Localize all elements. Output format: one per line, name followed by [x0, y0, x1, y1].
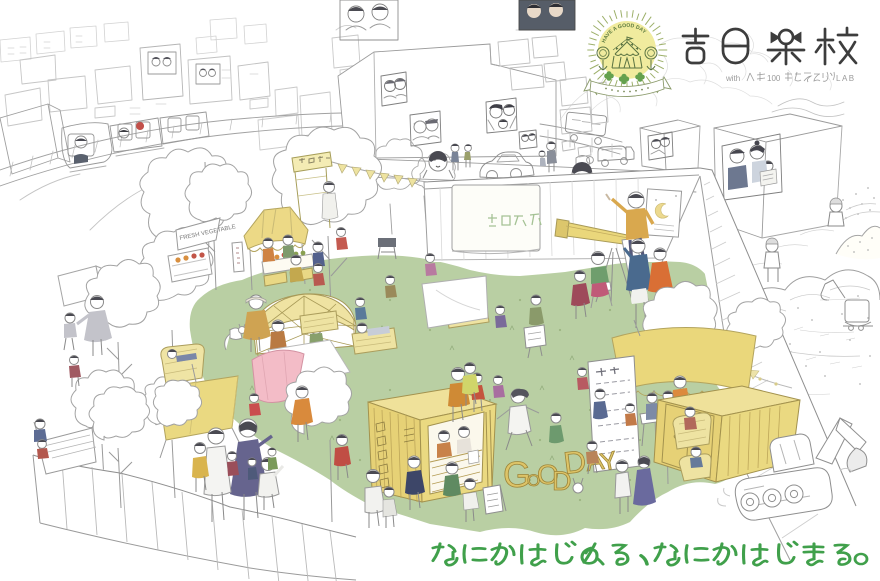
svg-text:LAB: LAB [836, 74, 856, 83]
svg-text:with: with [725, 74, 740, 83]
svg-text:100: 100 [767, 74, 781, 83]
